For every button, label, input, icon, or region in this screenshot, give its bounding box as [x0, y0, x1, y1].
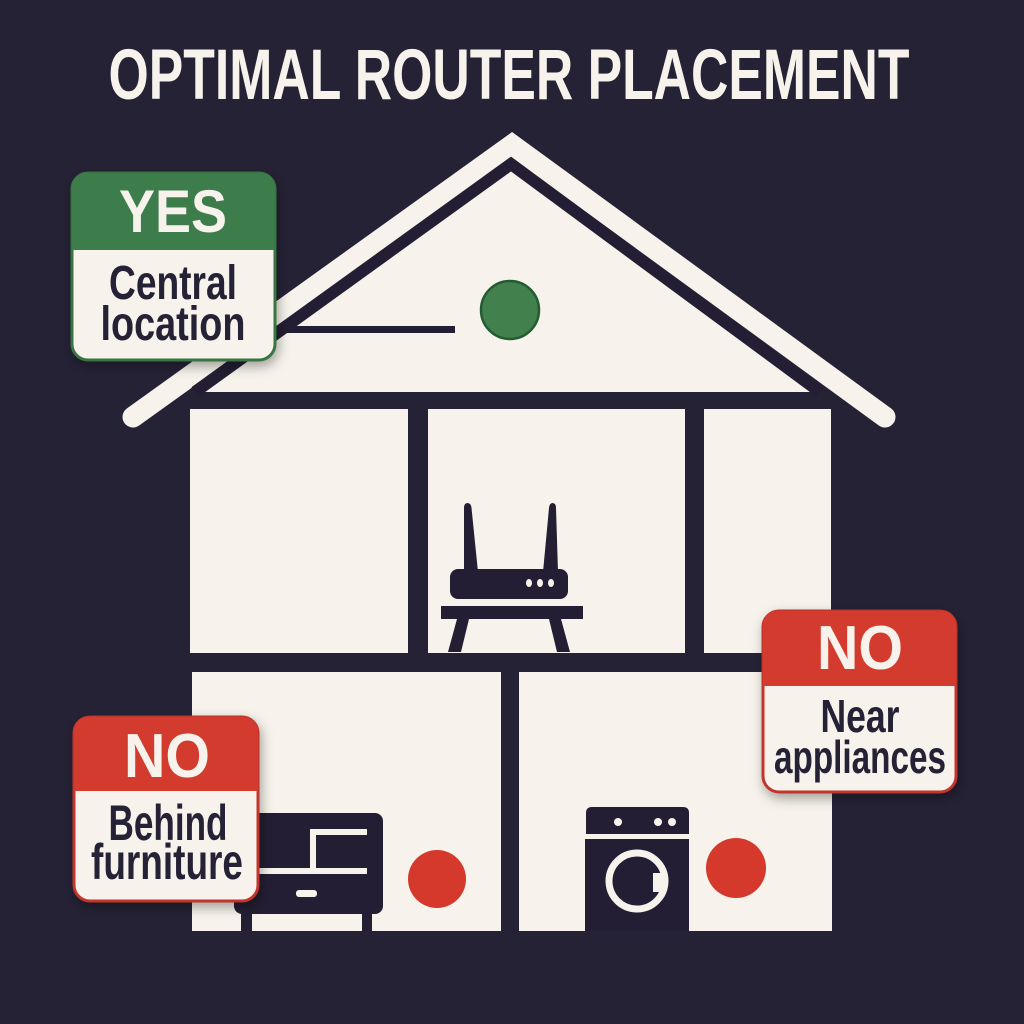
svg-text:OPTIMAL ROUTER PLACEMENT: OPTIMAL ROUTER PLACEMENT	[109, 36, 910, 115]
svg-text:appliances: appliances	[774, 731, 946, 783]
svg-text:YES: YES	[119, 178, 227, 245]
svg-text:furniture: furniture	[91, 834, 243, 890]
svg-text:NO: NO	[817, 614, 903, 683]
svg-text:NO: NO	[124, 722, 210, 791]
svg-text:location: location	[101, 298, 246, 351]
